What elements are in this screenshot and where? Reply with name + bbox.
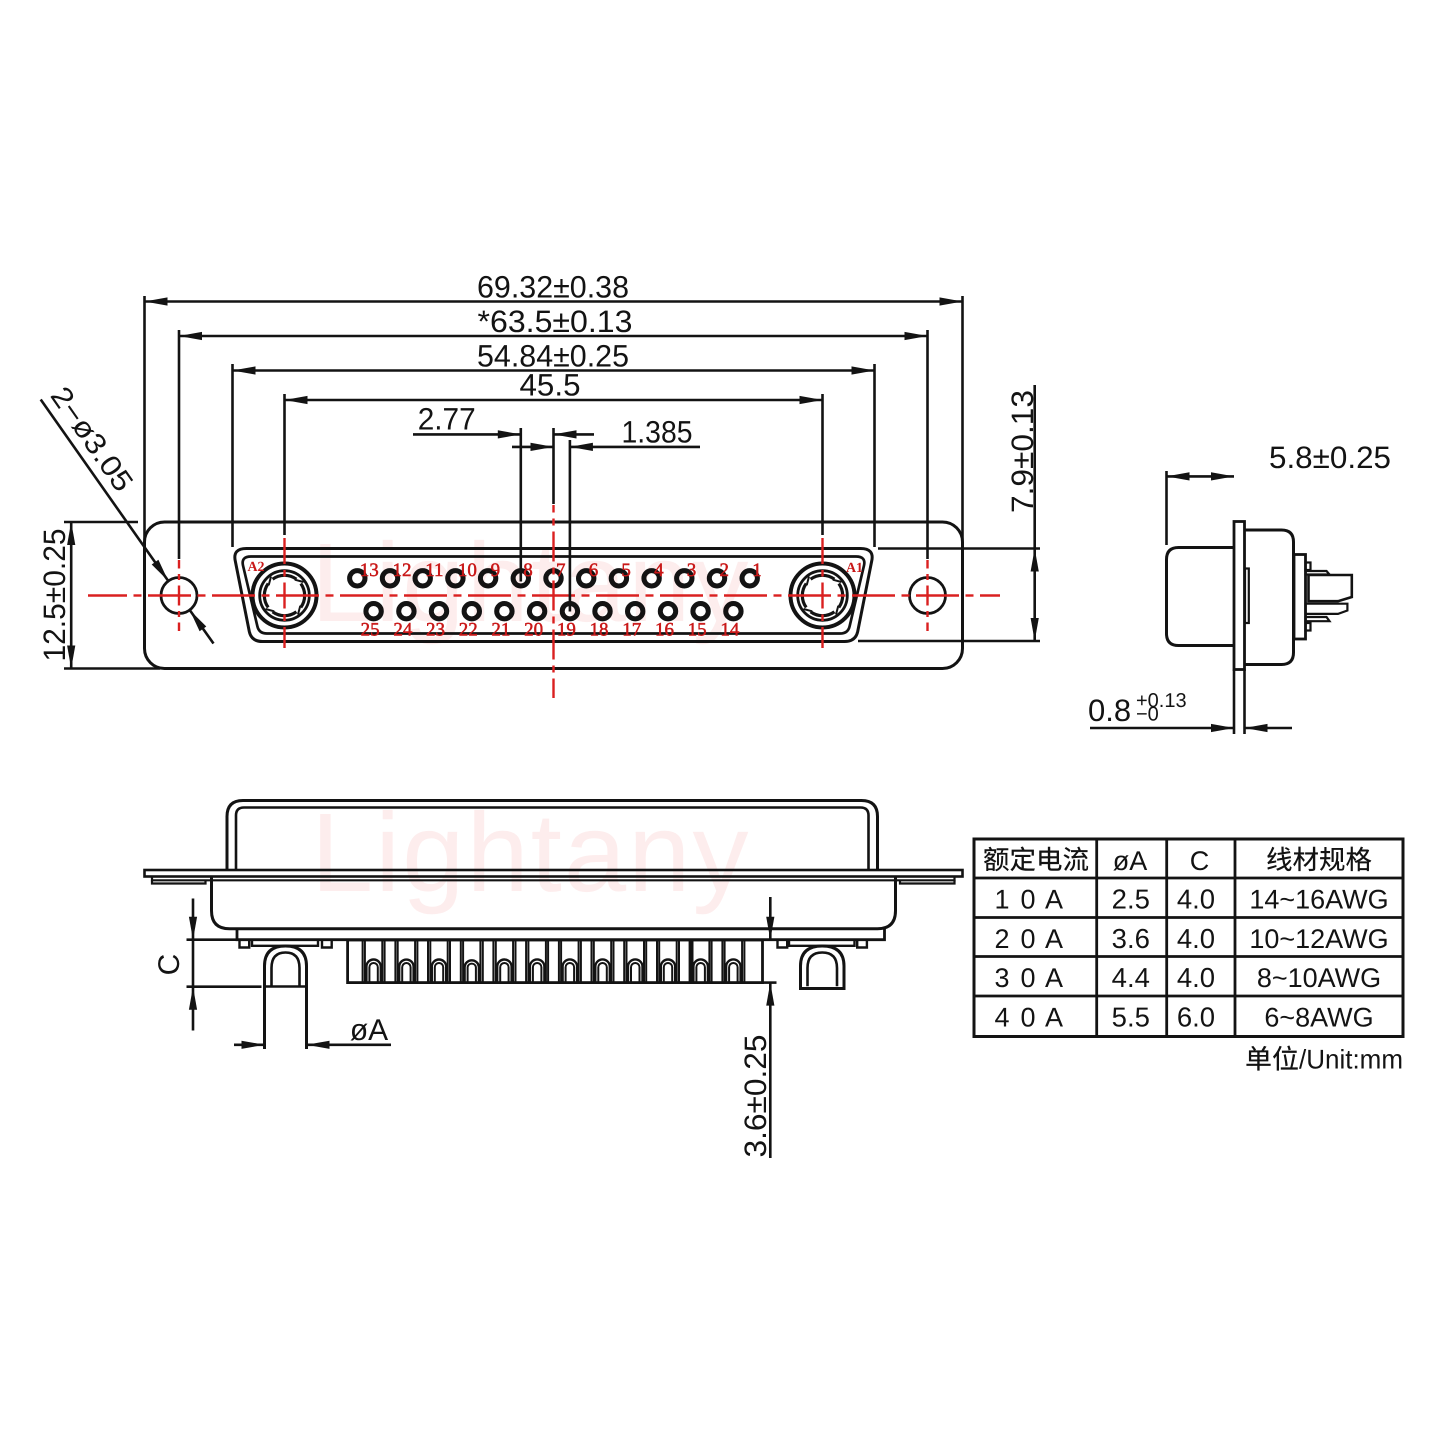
svg-text:øA: øA [1113,846,1148,876]
svg-text:0: 0 [1020,885,1035,915]
svg-text:3.6: 3.6 [1112,923,1150,954]
svg-text:23: 23 [426,620,445,641]
svg-text:22: 22 [459,620,478,641]
svg-text:14~16AWG: 14~16AWG [1249,885,1388,915]
svg-text:A: A [1045,963,1063,993]
svg-text:18: 18 [590,620,609,641]
svg-text:6: 6 [589,560,599,581]
svg-text:20: 20 [524,620,543,641]
svg-text:4.4: 4.4 [1112,962,1150,993]
svg-text:4.0: 4.0 [1177,962,1215,993]
svg-text:4: 4 [654,560,664,581]
svg-text:0: 0 [1020,963,1035,993]
svg-text:9: 9 [491,560,501,581]
svg-text:11: 11 [425,560,443,581]
svg-text:24: 24 [393,620,413,641]
svg-text:14: 14 [720,620,740,641]
svg-text:2: 2 [720,560,730,581]
svg-text:C: C [1190,846,1210,876]
svg-text:17: 17 [622,620,641,641]
svg-text:5.8±0.25: 5.8±0.25 [1269,440,1391,475]
svg-text:6.0: 6.0 [1177,1002,1215,1033]
svg-text:10~12AWG: 10~12AWG [1249,924,1388,954]
svg-text:21: 21 [491,620,510,641]
svg-text:øA: øA [350,1014,388,1047]
svg-text:4.0: 4.0 [1177,884,1215,915]
svg-text:A: A [1045,1003,1063,1033]
svg-text:25: 25 [361,620,380,641]
svg-text:2: 2 [994,924,1009,954]
svg-text:6~8AWG: 6~8AWG [1264,1003,1373,1033]
svg-text:C: C [153,954,186,976]
svg-text:12.5±0.25: 12.5±0.25 [37,529,72,662]
svg-text:12: 12 [393,560,412,581]
svg-text:3: 3 [687,560,697,581]
svg-text:16: 16 [655,620,674,641]
svg-text:5: 5 [621,560,631,581]
svg-text:A: A [1045,924,1063,954]
svg-text:10: 10 [458,560,477,581]
svg-text:13: 13 [360,560,379,581]
svg-text:A: A [1045,885,1063,915]
svg-text:0: 0 [1020,924,1035,954]
svg-text:7.9±0.13: 7.9±0.13 [1005,390,1040,513]
svg-text:2.77: 2.77 [418,402,476,437]
svg-text:/Unit:mm: /Unit:mm [1299,1045,1403,1075]
svg-text:0.8: 0.8 [1088,693,1131,728]
svg-text:1.385: 1.385 [622,415,693,450]
svg-text:*63.5±0.13: *63.5±0.13 [478,304,633,339]
svg-text:15: 15 [688,620,707,641]
svg-text:−0: −0 [1136,704,1159,726]
svg-text:5.5: 5.5 [1112,1002,1150,1033]
svg-text:4.0: 4.0 [1177,923,1215,954]
svg-text:8: 8 [523,560,533,581]
svg-text:2.5: 2.5 [1112,884,1150,915]
svg-text:1: 1 [752,560,762,581]
svg-text:A2: A2 [247,560,264,575]
svg-text:8~10AWG: 8~10AWG [1257,963,1381,993]
svg-text:7: 7 [556,560,566,581]
svg-text:69.32±0.38: 69.32±0.38 [477,270,629,305]
svg-text:45.5: 45.5 [520,368,581,403]
svg-text:1: 1 [994,885,1009,915]
svg-text:0: 0 [1020,1003,1035,1033]
svg-text:A1: A1 [846,561,863,576]
svg-text:3.6±0.25: 3.6±0.25 [738,1035,773,1158]
svg-text:3: 3 [994,963,1009,993]
svg-text:4: 4 [994,1003,1009,1033]
svg-text:19: 19 [557,620,576,641]
